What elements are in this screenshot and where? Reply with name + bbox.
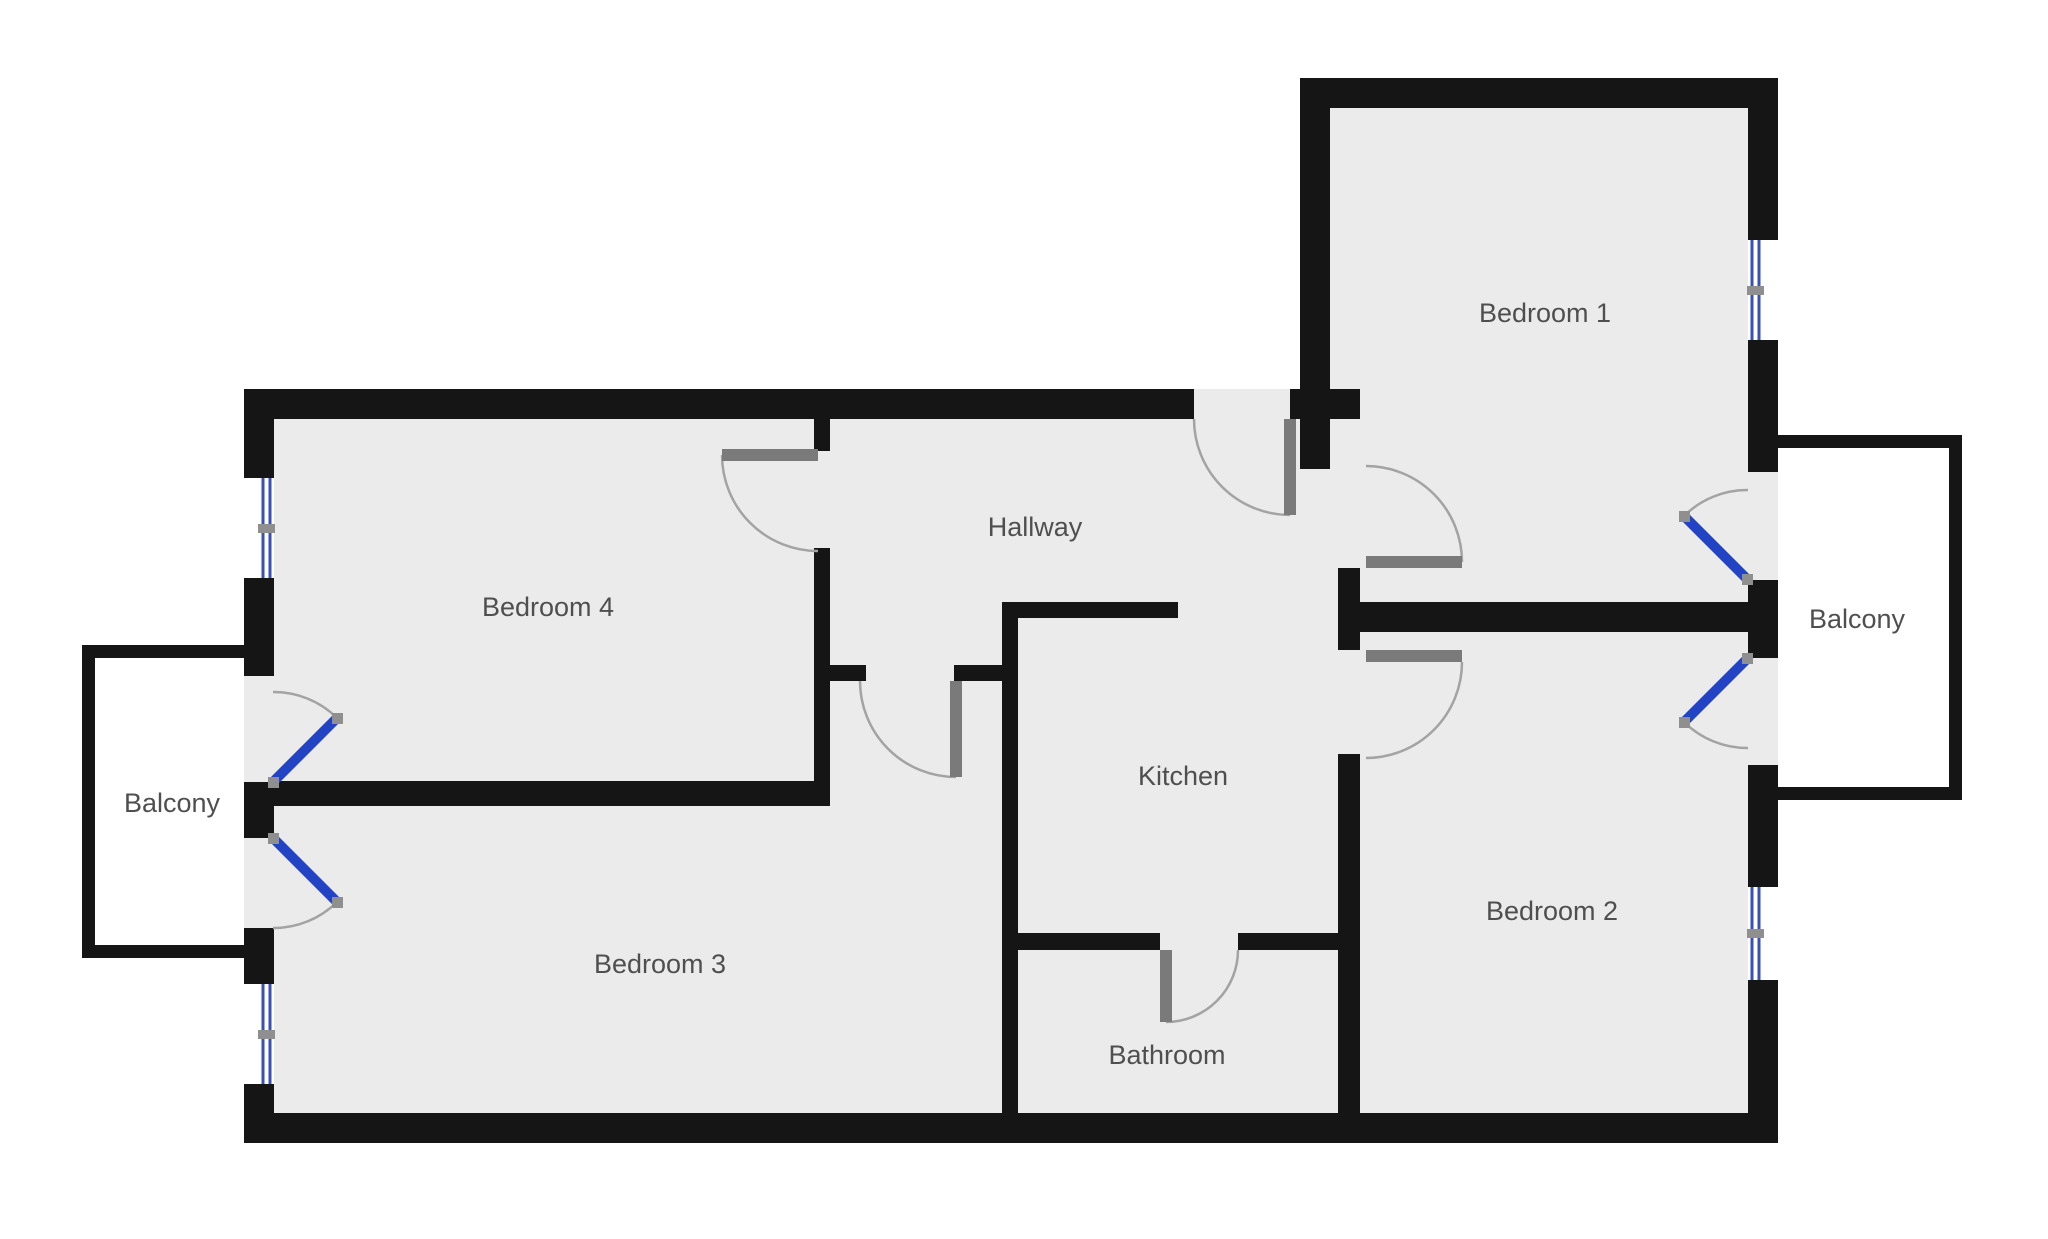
wall-left-2 [244,578,274,676]
door-leaf [1160,950,1172,1022]
wall-kitchen-bedroom2 [1338,754,1360,1117]
wall-bedroom4-hallway-stub [814,419,830,451]
room-label-bedroom-3: Bedroom 3 [594,949,726,979]
wall-bedroom1-right-lower [1748,340,1778,447]
wall-bedroom1-left [1300,78,1330,469]
wall-left-4 [244,928,274,984]
wall-right-piece-2 [1748,765,1778,800]
door-leaf [1284,419,1296,515]
wall-right-lower-1 [1748,800,1778,887]
wall-bedroom1-bedroom2 [1360,602,1748,632]
wall-bedroom1-right-upper [1748,78,1778,240]
balcony-right-wall-outer [1949,435,1962,800]
floor-plan-page: Bedroom 1 Bedroom 2 Bedroom 3 Bedroom 4 … [0,0,2048,1239]
balcony-door-opening-bedroom1 [1748,472,1778,580]
door-hinge-cap [268,777,279,788]
window-bedroom1 [1747,240,1778,340]
balcony-right-wall-bottom [1778,787,1962,800]
room-label-hallway: Hallway [988,512,1083,542]
wall-kitchen-top [1002,602,1178,618]
wall-hallway-bedroom3-right [954,665,1002,681]
wall-left-1 [244,419,274,478]
window-mullion [1747,286,1764,295]
balcony-door-opening-bedroom4 [244,676,274,782]
door-leaf [1366,650,1462,662]
balcony-left-wall-outer [82,645,95,958]
door-hinge-cap [1742,574,1753,585]
door-tip-cap [332,897,343,908]
balcony-right-wall-top [1778,435,1962,448]
wall-right-piece-1 [1748,447,1778,472]
wall-hallway-bedroom3-left [830,665,866,681]
door-leaf [722,449,818,461]
bedroom-1-floor [1330,108,1748,438]
wall-doorway-pier [1338,568,1360,650]
door-leaf [950,681,962,777]
door-leaf [1366,556,1462,568]
wall-top [244,389,1194,419]
door-tip-cap [1679,717,1690,728]
wall-kitchen-left [1002,602,1018,1117]
wall-bathroom-top-right [1238,933,1338,950]
entry-opening-floor [1194,389,1290,419]
wall-bathroom-top-left [1002,933,1160,950]
window-bedroom2 [1747,887,1778,980]
window-bedroom4 [244,478,275,578]
room-label-bathroom: Bathroom [1108,1040,1225,1070]
wall-left-3 [244,782,274,838]
balcony-left-wall-bottom [82,945,244,958]
room-label-kitchen: Kitchen [1138,761,1228,791]
balcony-door-opening-bedroom3 [244,838,274,928]
door-hinge-cap [268,833,279,844]
wall-left-5 [244,1084,274,1143]
room-label-balcony-left: Balcony [124,788,221,818]
wall-right-pier [1748,580,1778,658]
window-mullion [1747,929,1764,938]
room-label-bedroom-2: Bedroom 2 [1486,896,1618,926]
wall-bedroom1-top [1300,78,1778,108]
door-hinge-cap [1742,653,1753,664]
room-label-balcony-right: Balcony [1809,604,1906,634]
floor-plan-canvas: Bedroom 1 Bedroom 2 Bedroom 3 Bedroom 4 … [0,0,2048,1239]
wall-bottom [244,1113,1778,1143]
room-label-bedroom-4: Bedroom 4 [482,592,614,622]
room-label-bedroom-1: Bedroom 1 [1479,298,1611,328]
window-mullion [258,1030,275,1039]
balcony-left-wall-top [82,645,244,658]
wall-bedroom4-hallway [814,548,830,806]
window-bedroom3 [244,984,275,1084]
door-tip-cap [332,713,343,724]
wall-bedroom4-bedroom3 [274,781,830,806]
door-tip-cap [1679,511,1690,522]
window-mullion [258,524,275,533]
balcony-door-opening-bedroom2 [1748,658,1778,765]
